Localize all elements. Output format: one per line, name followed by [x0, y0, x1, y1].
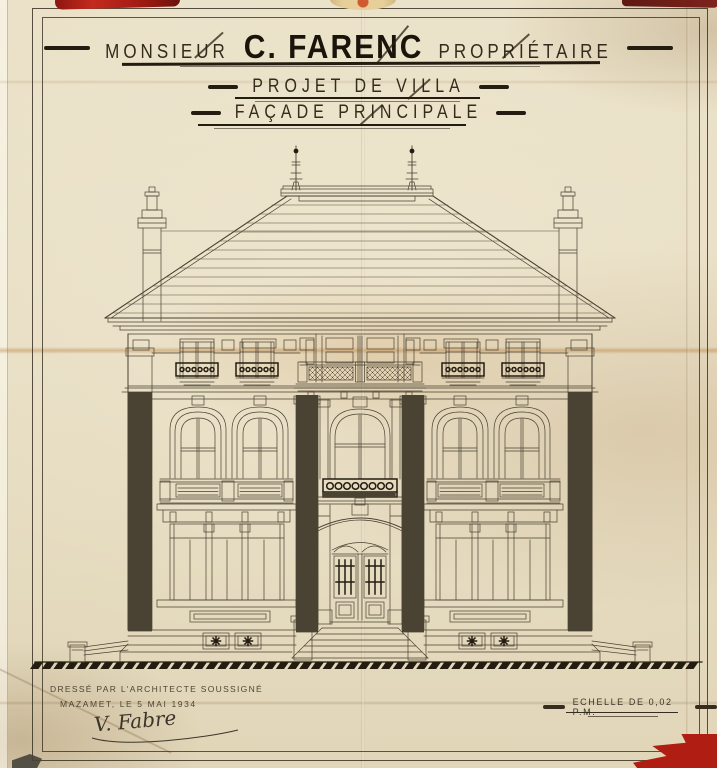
- scale-label: ECHELLE DE 0,02 P.M.: [573, 697, 688, 717]
- hip-roof: [105, 196, 615, 318]
- center-french-window: [318, 397, 402, 479]
- lightning-rod-finial: [290, 146, 302, 190]
- ground-line: [35, 662, 702, 666]
- signature-flourish: [86, 724, 246, 746]
- cornice: [105, 318, 615, 334]
- entrance-door: [312, 498, 408, 624]
- scale-underline: [566, 712, 678, 713]
- ornament-dash: [543, 705, 565, 709]
- photograph-of-plan: MONSIEUR C. FARENC PROPRIÉTAIRE PROJET D…: [0, 0, 717, 768]
- villa-facade-drawing: .b{stroke:#241c10;stroke-width:1.5;} .f{…: [0, 0, 717, 768]
- iron-balcony-railing: [316, 479, 404, 504]
- lightning-rod-finial: [406, 146, 418, 190]
- drafted-by-text: DRESSÉ PAR L'ARCHITECTE SOUSSIGNÉ: [50, 684, 263, 694]
- ornament-dash: [695, 705, 717, 709]
- scale-block: ECHELLE DE 0,02 P.M.: [543, 697, 717, 717]
- entrance-steps: [291, 616, 429, 660]
- signature-block: DRESSÉ PAR L'ARCHITECTE SOUSSIGNÉ MAZAME…: [50, 684, 263, 733]
- scale-underline: [588, 716, 658, 717]
- roof-ridge-crest: [281, 186, 433, 201]
